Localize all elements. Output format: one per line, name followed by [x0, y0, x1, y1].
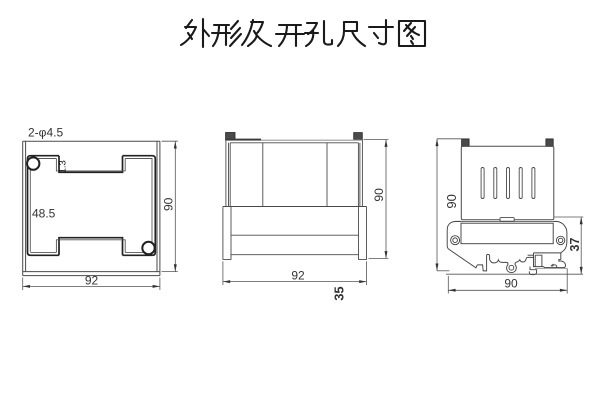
svg-text:90: 90: [162, 197, 176, 211]
svg-text:48.5: 48.5: [32, 207, 56, 221]
svg-text:35: 35: [332, 286, 347, 300]
svg-text:90: 90: [504, 277, 518, 291]
svg-text:90: 90: [444, 194, 459, 208]
svg-text:37: 37: [568, 238, 582, 252]
svg-text:2-φ4.5: 2-φ4.5: [28, 125, 63, 139]
svg-text:92: 92: [85, 274, 99, 288]
svg-text:90: 90: [372, 188, 386, 202]
svg-text:1.3: 1.3: [57, 160, 68, 173]
svg-text:92: 92: [291, 268, 305, 282]
